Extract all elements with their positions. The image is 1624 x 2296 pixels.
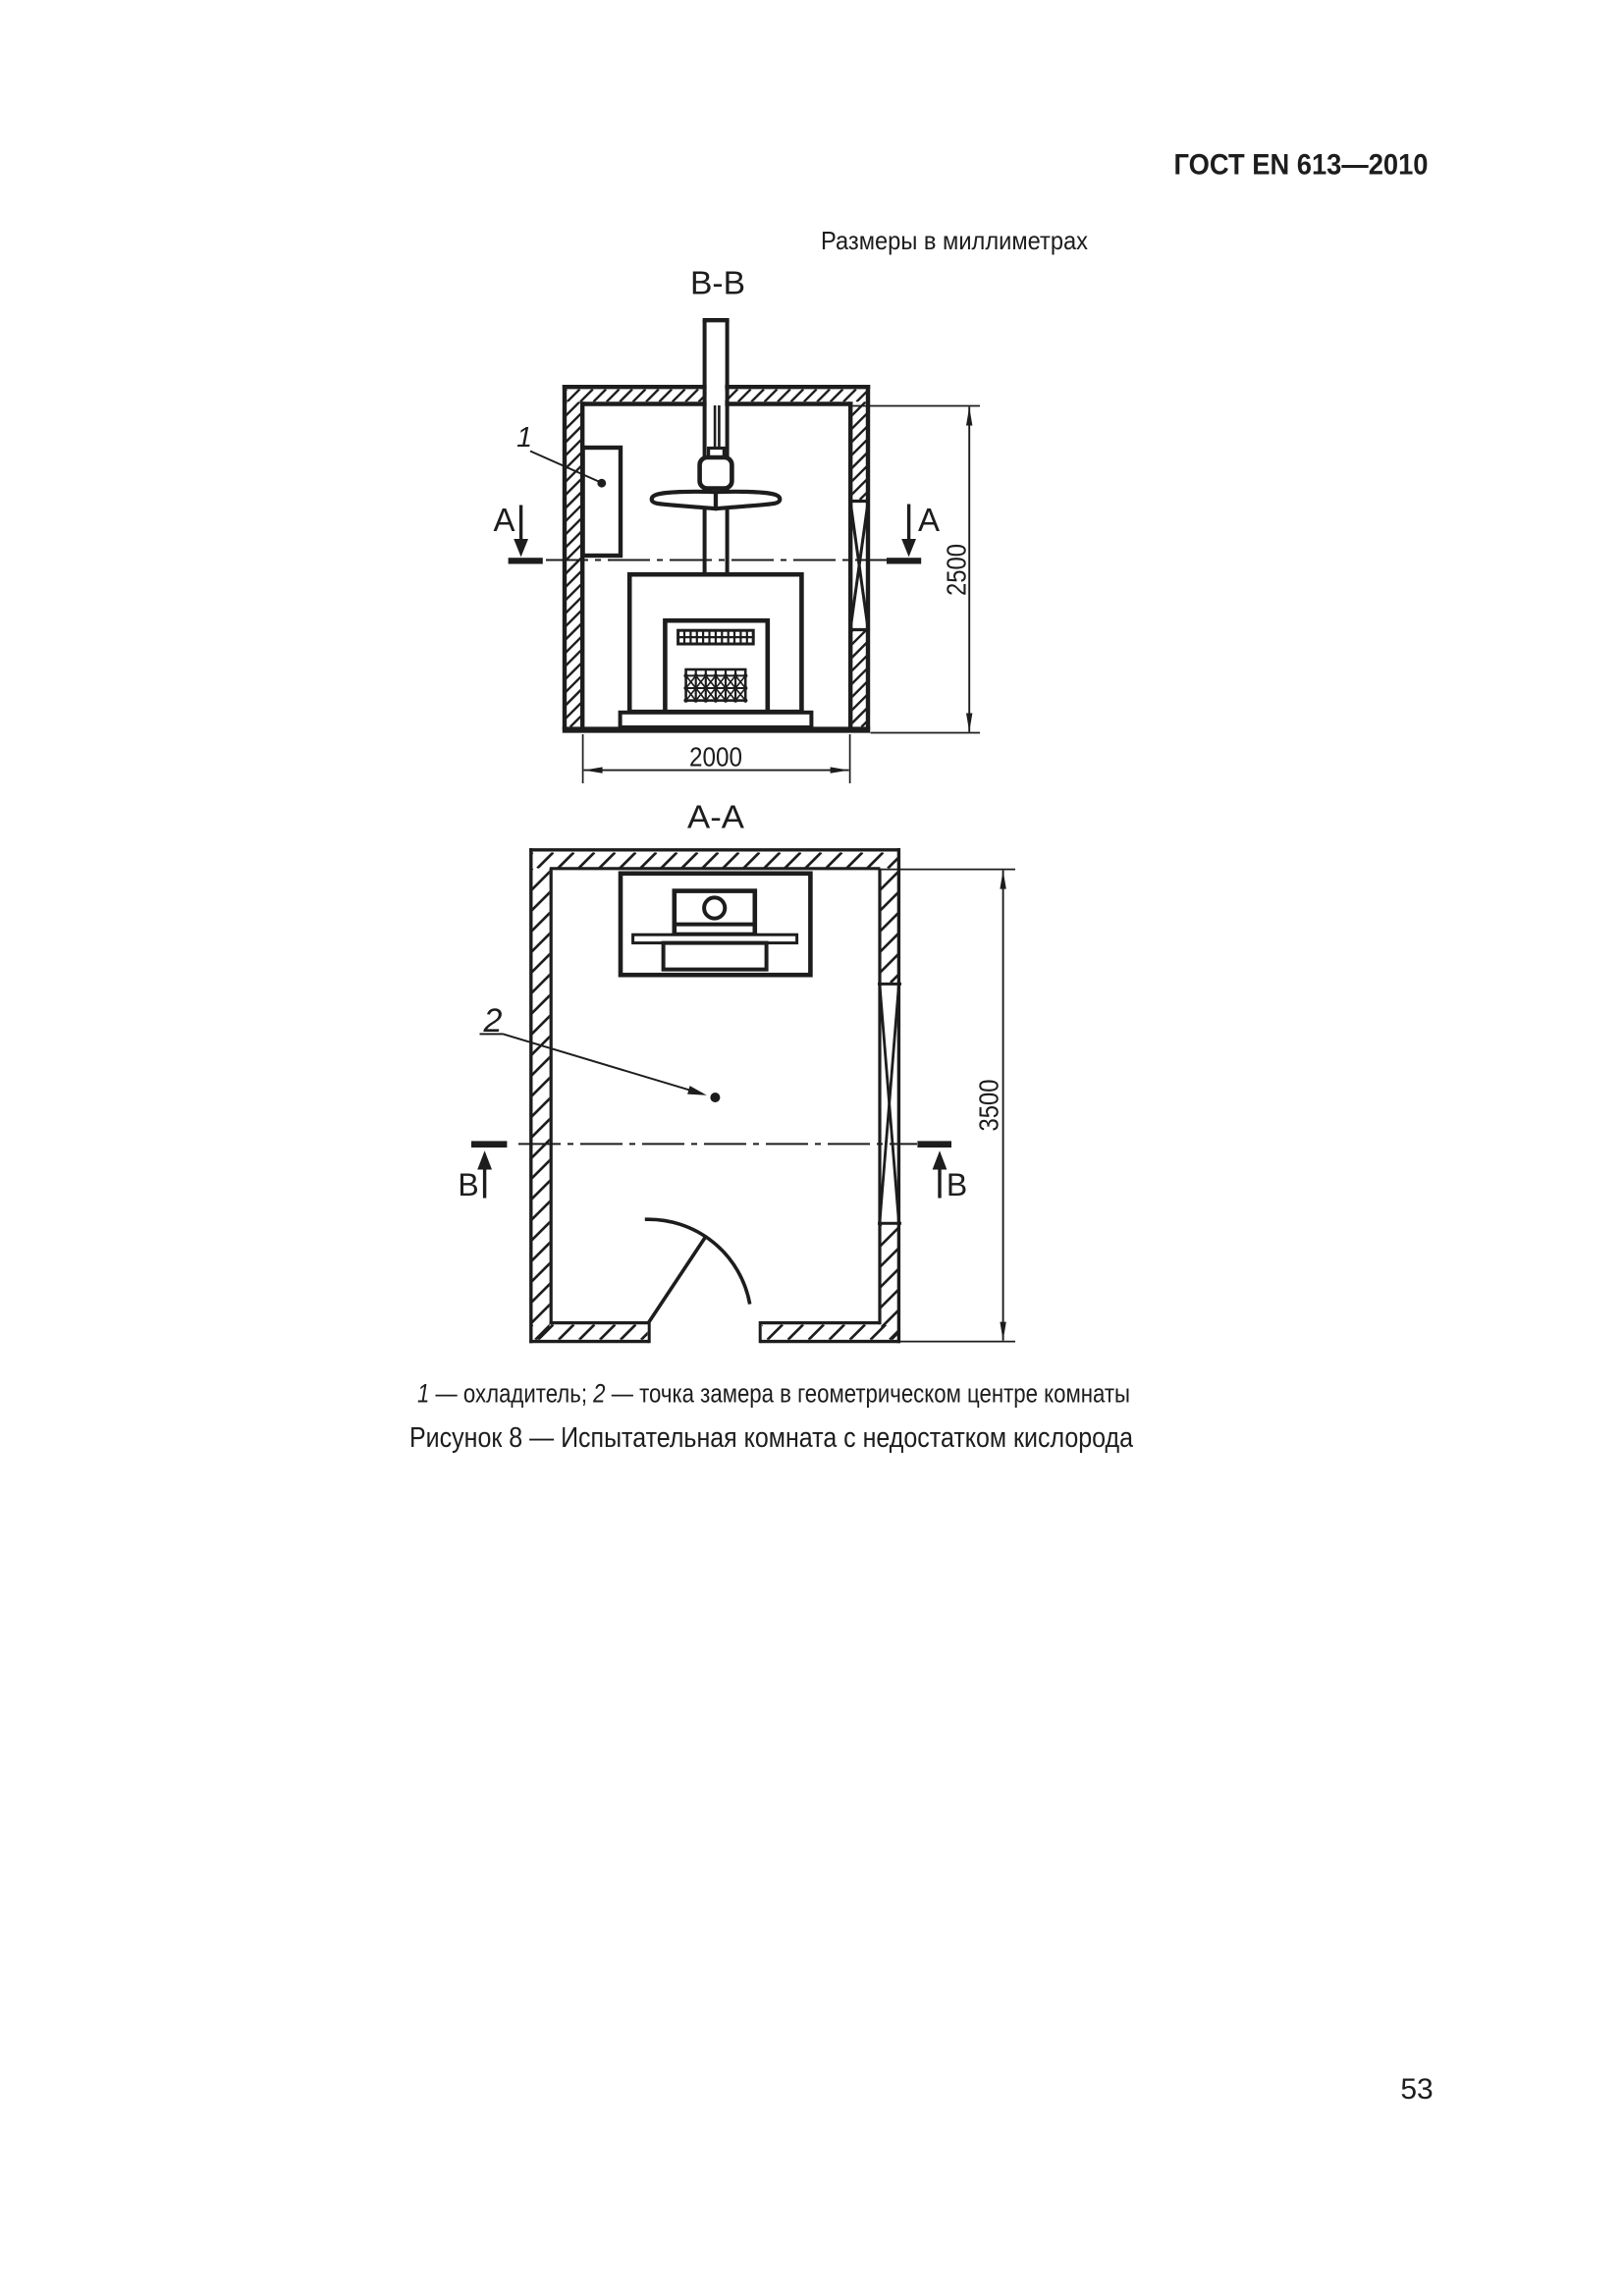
svg-text:1: 1	[516, 422, 532, 454]
svg-text:53: 53	[1400, 2073, 1433, 2106]
svg-text:В: В	[458, 1167, 478, 1202]
svg-text:В: В	[947, 1167, 967, 1202]
svg-text:В-В: В-В	[690, 265, 745, 301]
svg-text:ГОСТ EN 613—2010: ГОСТ EN 613—2010	[1174, 149, 1429, 182]
svg-text:2000: 2000	[689, 742, 742, 773]
svg-text:2500: 2500	[942, 544, 972, 596]
svg-text:А: А	[493, 502, 514, 538]
svg-text:А: А	[918, 502, 940, 538]
svg-text:Рисунок 8 — Испытательная комн: Рисунок 8 — Испытательная комната с недо…	[409, 1422, 1134, 1454]
svg-text:А-А: А-А	[687, 799, 744, 835]
svg-text:3500: 3500	[974, 1080, 1004, 1132]
svg-text:Размеры в миллиметрах: Размеры в миллиметрах	[821, 226, 1088, 255]
svg-text:1 — охладитель; 2 — точка заме: 1 — охладитель; 2 — точка замера в геоме…	[417, 1379, 1130, 1409]
